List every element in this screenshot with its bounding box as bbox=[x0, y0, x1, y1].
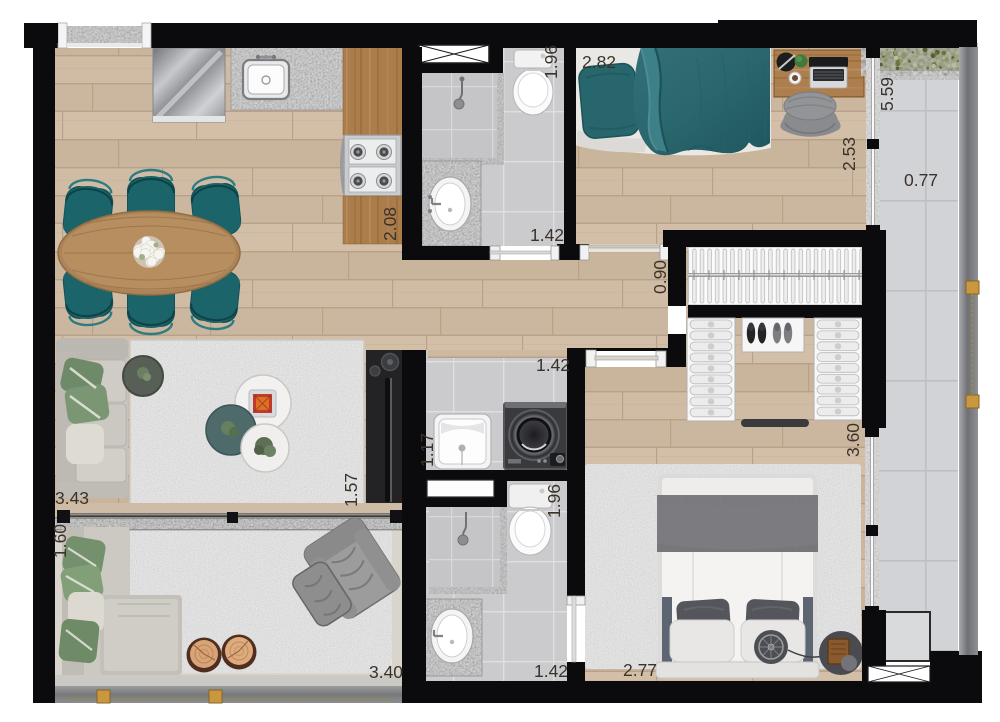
svg-text:1.96: 1.96 bbox=[541, 45, 561, 79]
svg-text:5.59: 5.59 bbox=[877, 77, 897, 111]
svg-text:1.42: 1.42 bbox=[536, 355, 570, 375]
svg-text:2.82: 2.82 bbox=[582, 52, 616, 72]
svg-text:1.96: 1.96 bbox=[544, 484, 564, 518]
svg-text:2.77: 2.77 bbox=[623, 660, 657, 680]
svg-text:1.42: 1.42 bbox=[530, 225, 564, 245]
svg-text:3.40: 3.40 bbox=[369, 662, 403, 682]
svg-text:1.42: 1.42 bbox=[534, 661, 568, 681]
svg-text:2.08: 2.08 bbox=[380, 207, 400, 241]
svg-text:0.90: 0.90 bbox=[650, 260, 670, 294]
svg-text:0.77: 0.77 bbox=[904, 170, 938, 190]
svg-text:3.43: 3.43 bbox=[55, 488, 89, 508]
svg-text:3.60: 3.60 bbox=[843, 423, 863, 457]
svg-text:1.17: 1.17 bbox=[417, 433, 437, 467]
svg-text:1.60: 1.60 bbox=[50, 524, 70, 558]
svg-text:1.57: 1.57 bbox=[341, 473, 361, 507]
svg-text:2.53: 2.53 bbox=[839, 137, 859, 171]
